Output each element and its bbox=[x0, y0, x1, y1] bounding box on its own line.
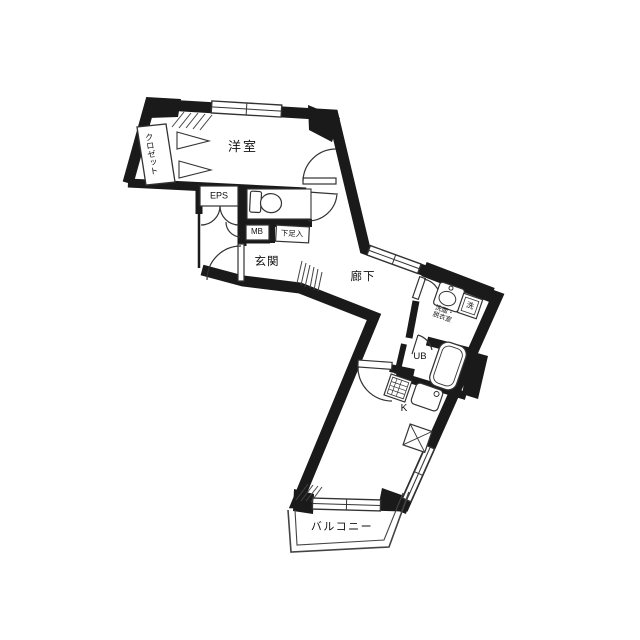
door-eps-double bbox=[201, 206, 239, 225]
label-kitchen: K bbox=[401, 404, 408, 415]
label-meter-box: MB bbox=[251, 228, 263, 236]
label-entrance: 玄関 bbox=[255, 256, 280, 268]
floorplan-drawing bbox=[0, 0, 640, 640]
window-balcony-sliding bbox=[312, 498, 380, 511]
closet-bifold-door-2 bbox=[179, 161, 211, 178]
label-shoe-box: 下足入 bbox=[281, 229, 304, 238]
pad-top-left bbox=[146, 97, 181, 118]
window-kitchen-side bbox=[403, 445, 435, 502]
label-eps: EPS bbox=[210, 191, 228, 200]
label-western-room: 洋室 bbox=[228, 140, 258, 154]
closet-bifold-door-1 bbox=[177, 132, 209, 149]
door-toilet bbox=[308, 192, 337, 221]
label-balcony: バルコニー bbox=[311, 522, 373, 534]
window-bedroom-top bbox=[211, 101, 282, 117]
label-unit-bath: UB bbox=[413, 352, 426, 362]
window-corridor bbox=[367, 246, 421, 274]
door-kitchen bbox=[358, 360, 392, 369]
kitchen-door-stub-wall bbox=[390, 368, 414, 373]
washroom-left-wall bbox=[409, 301, 416, 338]
floorplan: 洋室 クロゼット EPS MB 下足入 玄関 廊下 洗面・ 脱衣室 UB 洗 K… bbox=[0, 0, 640, 640]
door-bedroom bbox=[303, 149, 336, 184]
label-hallway: 廊下 bbox=[351, 271, 376, 283]
